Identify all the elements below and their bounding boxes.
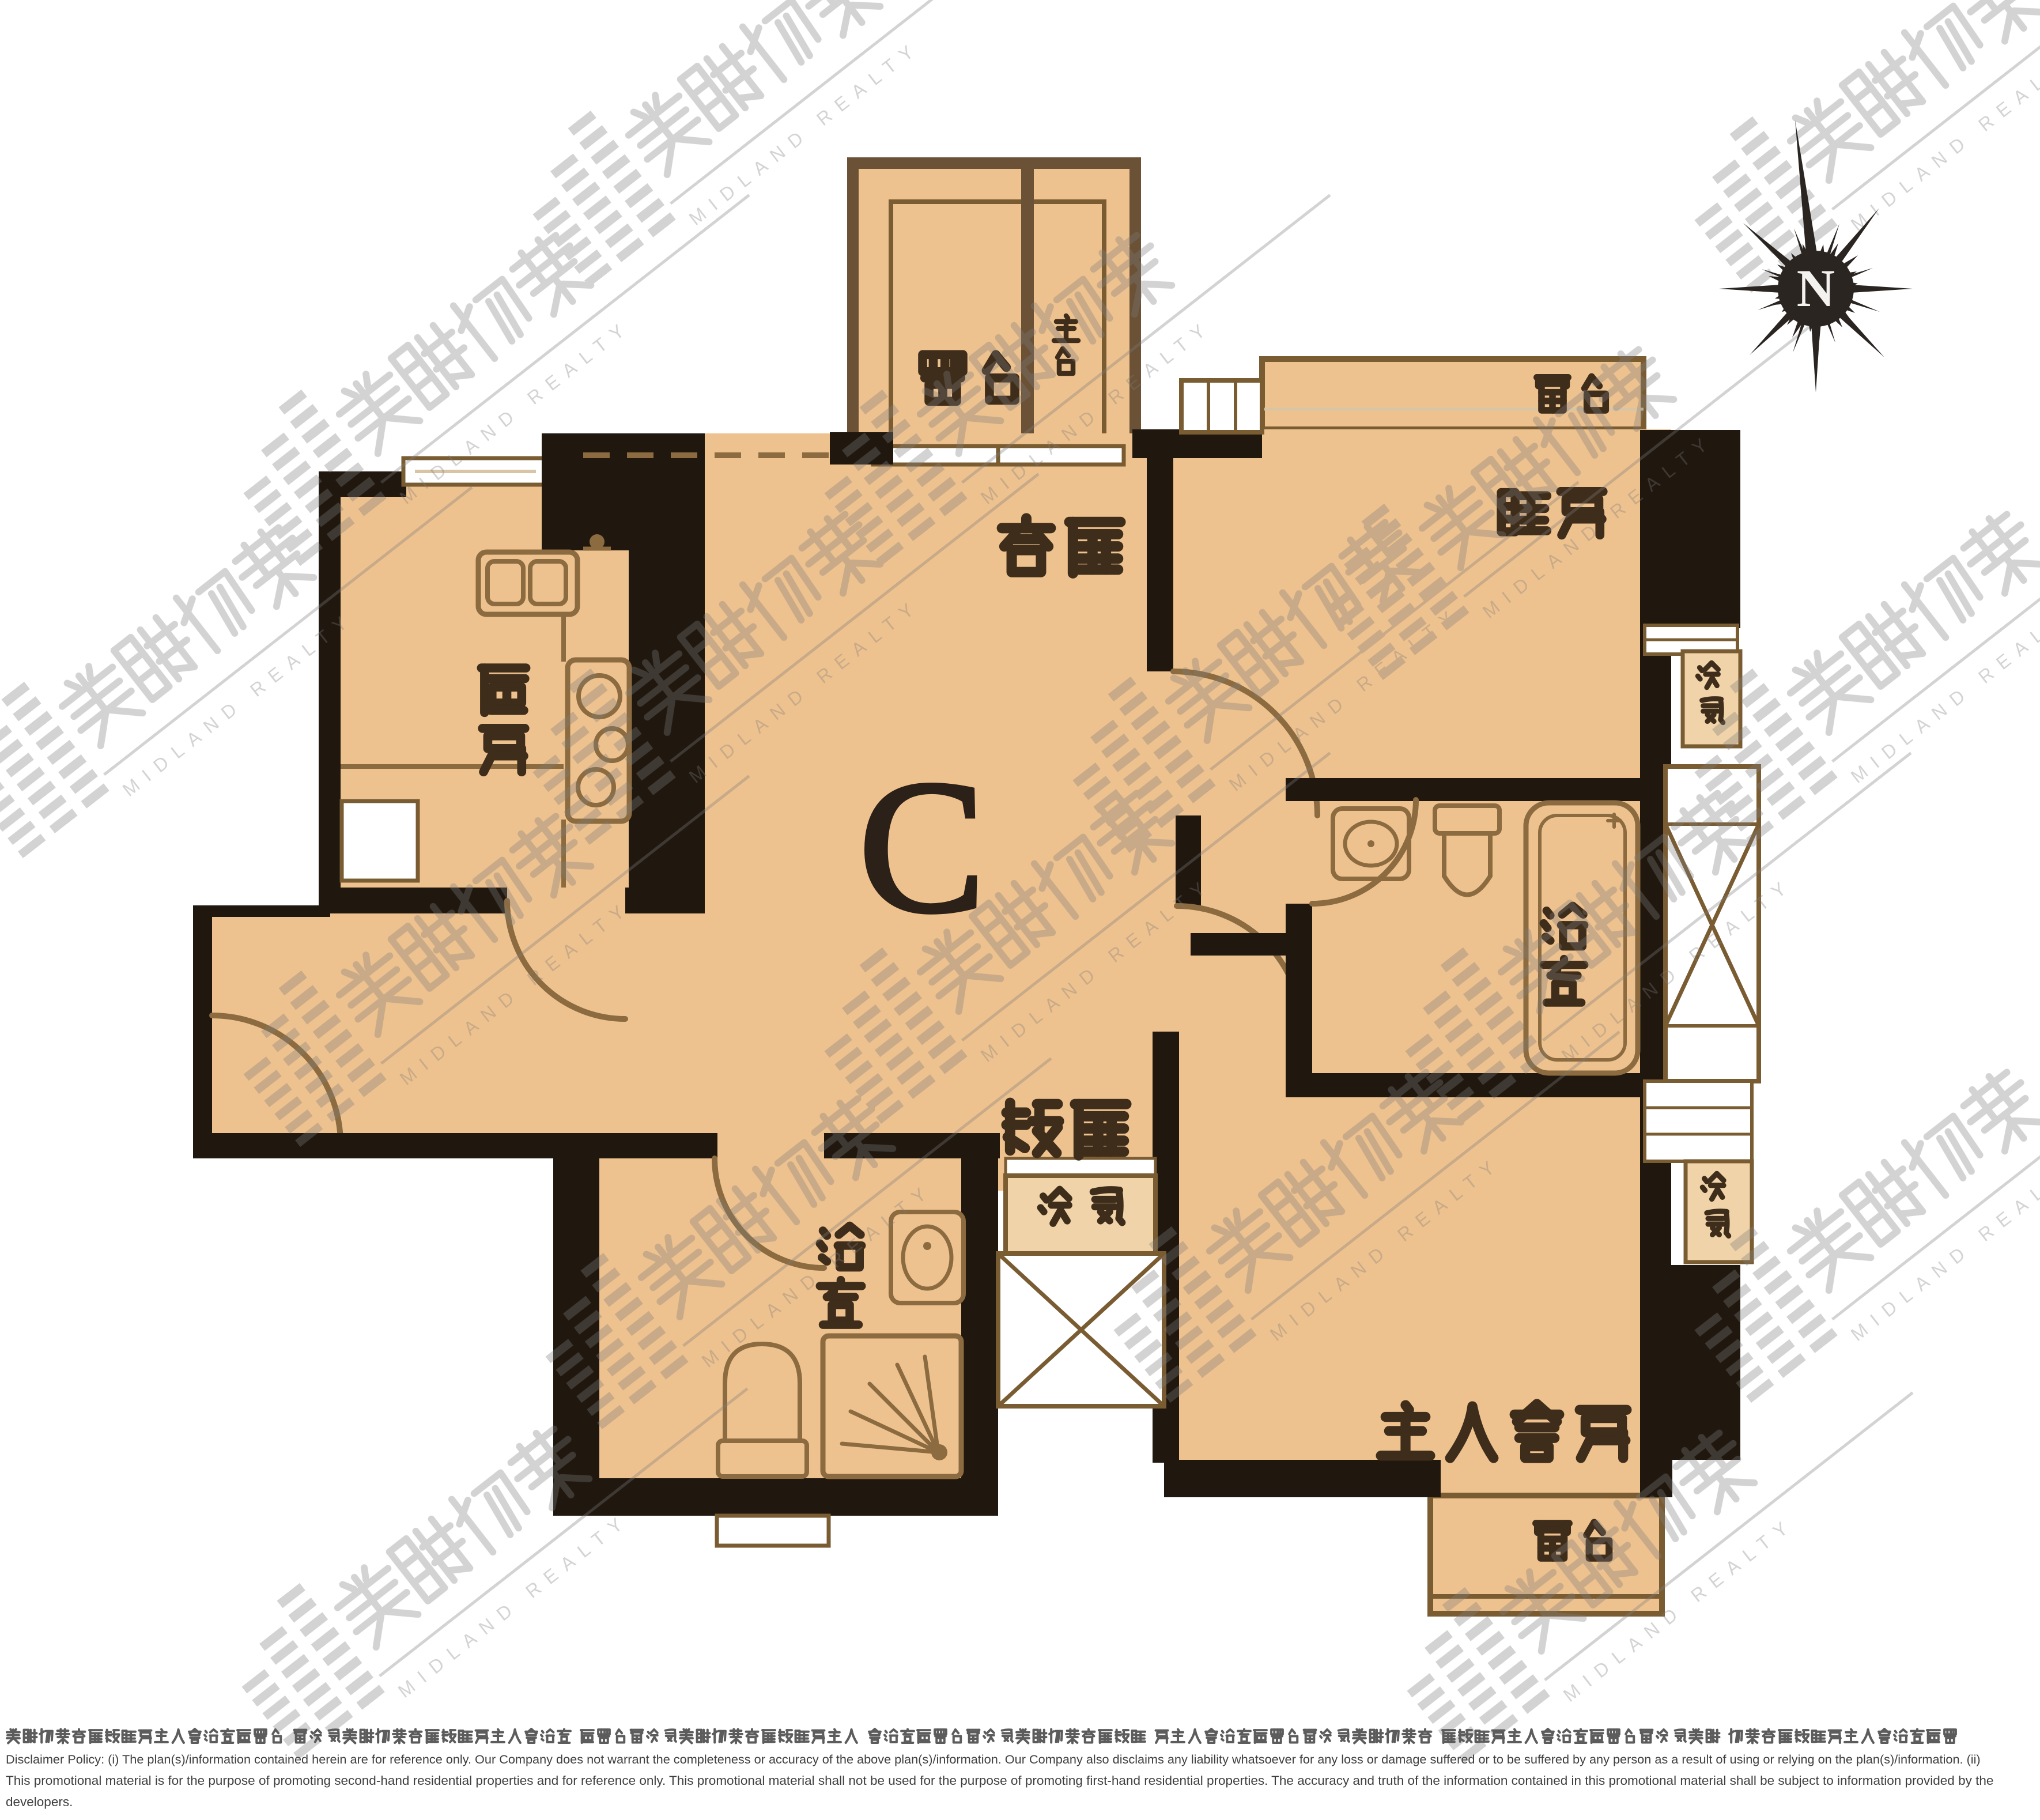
svg-text:C: C	[859, 742, 985, 952]
svg-text:N: N	[1797, 259, 1835, 318]
